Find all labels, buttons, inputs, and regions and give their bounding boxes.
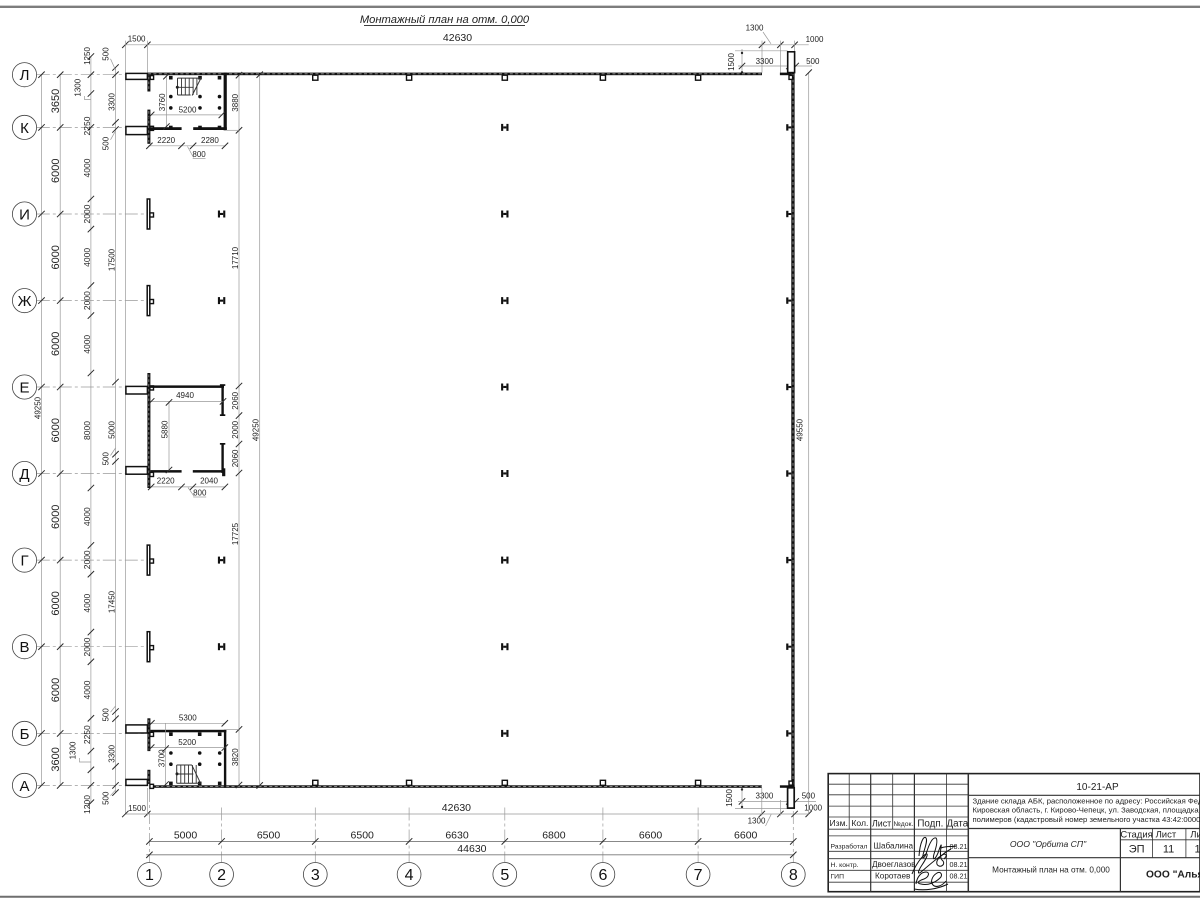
svg-text:4000: 4000 bbox=[82, 507, 92, 526]
svg-text:4000: 4000 bbox=[82, 593, 92, 612]
svg-text:полимеров (кадастровый номер з: полимеров (кадастровый номер земельного … bbox=[973, 815, 1200, 824]
svg-text:800: 800 bbox=[192, 150, 206, 159]
svg-text:Кол.: Кол. bbox=[851, 818, 868, 828]
svg-text:№док.: №док. bbox=[893, 821, 913, 828]
svg-text:3880: 3880 bbox=[231, 93, 240, 111]
svg-text:6600: 6600 bbox=[734, 830, 758, 842]
svg-text:3300: 3300 bbox=[108, 93, 117, 111]
svg-text:Дата: Дата bbox=[947, 818, 969, 829]
svg-text:Г: Г bbox=[20, 553, 28, 570]
svg-text:500: 500 bbox=[102, 708, 111, 722]
svg-text:В: В bbox=[19, 639, 29, 656]
svg-text:500: 500 bbox=[102, 136, 111, 150]
svg-text:6000: 6000 bbox=[50, 678, 62, 702]
svg-text:6000: 6000 bbox=[50, 505, 62, 529]
svg-text:4: 4 bbox=[405, 867, 414, 884]
svg-text:Кировская область, г. Кирово-Ч: Кировская область, г. Кирово-Чепецк, ул.… bbox=[973, 806, 1200, 815]
svg-text:3760: 3760 bbox=[158, 93, 167, 111]
svg-text:500: 500 bbox=[102, 791, 111, 805]
svg-text:1: 1 bbox=[145, 867, 154, 884]
svg-text:08.21: 08.21 bbox=[950, 872, 968, 881]
svg-text:49250: 49250 bbox=[34, 396, 43, 419]
svg-text:ЭП: ЭП bbox=[1129, 843, 1145, 855]
svg-text:Лист: Лист bbox=[1156, 829, 1177, 840]
svg-text:1: 1 bbox=[1194, 843, 1200, 855]
svg-text:Стадия: Стадия bbox=[1120, 829, 1152, 840]
svg-text:Л: Л bbox=[20, 67, 30, 84]
svg-text:6600: 6600 bbox=[639, 830, 663, 842]
svg-text:2250: 2250 bbox=[82, 116, 92, 135]
svg-text:2000: 2000 bbox=[231, 420, 240, 438]
svg-text:Е: Е bbox=[19, 379, 29, 396]
svg-text:4000: 4000 bbox=[82, 680, 92, 699]
svg-text:5000: 5000 bbox=[108, 421, 117, 439]
svg-text:1500: 1500 bbox=[725, 789, 734, 807]
svg-text:1300: 1300 bbox=[68, 741, 77, 759]
svg-text:3820: 3820 bbox=[231, 748, 240, 766]
svg-text:5880: 5880 bbox=[161, 420, 170, 438]
svg-text:500: 500 bbox=[102, 451, 111, 465]
svg-text:6500: 6500 bbox=[257, 830, 281, 842]
svg-text:5300: 5300 bbox=[179, 714, 197, 723]
svg-text:1300: 1300 bbox=[746, 24, 764, 33]
svg-text:3650: 3650 bbox=[50, 89, 62, 113]
svg-text:49550: 49550 bbox=[796, 418, 805, 441]
svg-text:17710: 17710 bbox=[231, 246, 240, 269]
svg-text:8000: 8000 bbox=[82, 421, 92, 440]
svg-text:2250: 2250 bbox=[82, 725, 92, 744]
svg-text:Лист: Лист bbox=[872, 818, 891, 828]
svg-text:17725: 17725 bbox=[231, 522, 240, 545]
svg-text:8: 8 bbox=[789, 867, 798, 884]
svg-text:08.21: 08.21 bbox=[950, 860, 968, 869]
svg-text:6000: 6000 bbox=[50, 418, 62, 442]
svg-text:42630: 42630 bbox=[442, 802, 471, 814]
svg-text:6500: 6500 bbox=[351, 830, 375, 842]
svg-text:2060: 2060 bbox=[231, 391, 240, 409]
svg-text:Монтажный план на отм. 0,000: Монтажный план на отм. 0,000 bbox=[992, 865, 1110, 874]
svg-text:7: 7 bbox=[694, 867, 703, 884]
svg-text:Двоеглазов: Двоеглазов bbox=[872, 860, 916, 869]
svg-text:6630: 6630 bbox=[445, 830, 469, 842]
svg-text:ООО "Альянс: ООО "Альянс bbox=[1146, 870, 1200, 881]
svg-text:1000: 1000 bbox=[806, 35, 824, 44]
svg-text:А: А bbox=[19, 778, 29, 795]
svg-text:2220: 2220 bbox=[157, 136, 175, 145]
svg-text:44630: 44630 bbox=[457, 843, 486, 855]
svg-text:Изм.: Изм. bbox=[829, 818, 847, 828]
svg-text:Ж: Ж bbox=[18, 293, 32, 310]
svg-text:2000: 2000 bbox=[82, 550, 92, 569]
svg-text:1250: 1250 bbox=[83, 47, 92, 65]
svg-text:Ли: Ли bbox=[1190, 829, 1200, 840]
svg-text:2280: 2280 bbox=[201, 136, 219, 145]
svg-text:ООО "Орбита СП": ООО "Орбита СП" bbox=[1010, 839, 1087, 849]
svg-text:3300: 3300 bbox=[108, 744, 117, 762]
svg-text:6800: 6800 bbox=[542, 830, 566, 842]
svg-text:10-21-АР: 10-21-АР bbox=[1076, 782, 1119, 793]
svg-text:1500: 1500 bbox=[128, 804, 146, 813]
svg-text:800: 800 bbox=[193, 488, 207, 497]
svg-text:1300: 1300 bbox=[748, 817, 766, 826]
svg-text:3600: 3600 bbox=[50, 747, 62, 771]
svg-text:2040: 2040 bbox=[200, 476, 218, 485]
svg-text:Разработал: Разработал bbox=[831, 843, 868, 851]
svg-text:6000: 6000 bbox=[50, 245, 62, 269]
svg-text:17500: 17500 bbox=[108, 248, 117, 271]
svg-text:1000: 1000 bbox=[804, 803, 822, 812]
svg-text:1500: 1500 bbox=[128, 35, 146, 44]
svg-text:2000: 2000 bbox=[82, 204, 92, 223]
svg-text:2: 2 bbox=[217, 867, 226, 884]
svg-text:500: 500 bbox=[102, 47, 111, 61]
svg-text:3: 3 bbox=[311, 867, 320, 884]
svg-text:2220: 2220 bbox=[157, 476, 175, 485]
svg-text:11: 11 bbox=[1163, 843, 1174, 855]
svg-text:5000: 5000 bbox=[174, 830, 198, 842]
svg-text:Коротаев: Коротаев bbox=[875, 871, 910, 880]
svg-text:5200: 5200 bbox=[179, 105, 197, 114]
svg-text:500: 500 bbox=[806, 57, 820, 66]
svg-text:42630: 42630 bbox=[443, 32, 472, 44]
svg-text:2000: 2000 bbox=[82, 291, 92, 310]
svg-text:17450: 17450 bbox=[108, 590, 117, 613]
svg-text:И: И bbox=[19, 206, 30, 223]
svg-text:500: 500 bbox=[802, 792, 816, 801]
svg-text:4000: 4000 bbox=[82, 335, 92, 354]
svg-text:Д: Д bbox=[19, 466, 29, 483]
svg-text:ГИП: ГИП bbox=[831, 873, 845, 880]
svg-text:6: 6 bbox=[598, 867, 607, 884]
svg-text:Шабалина: Шабалина bbox=[874, 842, 914, 851]
svg-text:3700: 3700 bbox=[157, 749, 166, 767]
svg-text:6000: 6000 bbox=[50, 158, 62, 182]
svg-text:Подп.: Подп. bbox=[917, 818, 943, 829]
svg-text:6000: 6000 bbox=[50, 332, 62, 356]
svg-text:4000: 4000 bbox=[82, 248, 92, 267]
svg-text:4940: 4940 bbox=[176, 391, 194, 400]
svg-text:3300: 3300 bbox=[756, 57, 774, 66]
svg-text:6000: 6000 bbox=[50, 591, 62, 615]
svg-text:4000: 4000 bbox=[82, 158, 92, 177]
svg-text:Здание склада АБК, расположенн: Здание склада АБК, расположенное по адре… bbox=[973, 796, 1200, 805]
svg-text:5200: 5200 bbox=[178, 738, 196, 747]
svg-text:5: 5 bbox=[500, 867, 509, 884]
svg-text:Монтажный план на отм. 0,000: Монтажный план на отм. 0,000 bbox=[360, 14, 530, 26]
svg-text:1500: 1500 bbox=[727, 53, 736, 71]
svg-text:2000: 2000 bbox=[82, 637, 92, 656]
svg-text:2060: 2060 bbox=[231, 449, 240, 467]
svg-text:1300: 1300 bbox=[73, 78, 82, 96]
svg-text:К: К bbox=[20, 120, 29, 137]
svg-text:3300: 3300 bbox=[756, 792, 774, 801]
svg-text:Б: Б bbox=[20, 726, 30, 743]
svg-text:Н. контр.: Н. контр. bbox=[831, 862, 859, 869]
svg-text:1200: 1200 bbox=[82, 795, 92, 814]
svg-text:49250: 49250 bbox=[252, 418, 261, 441]
